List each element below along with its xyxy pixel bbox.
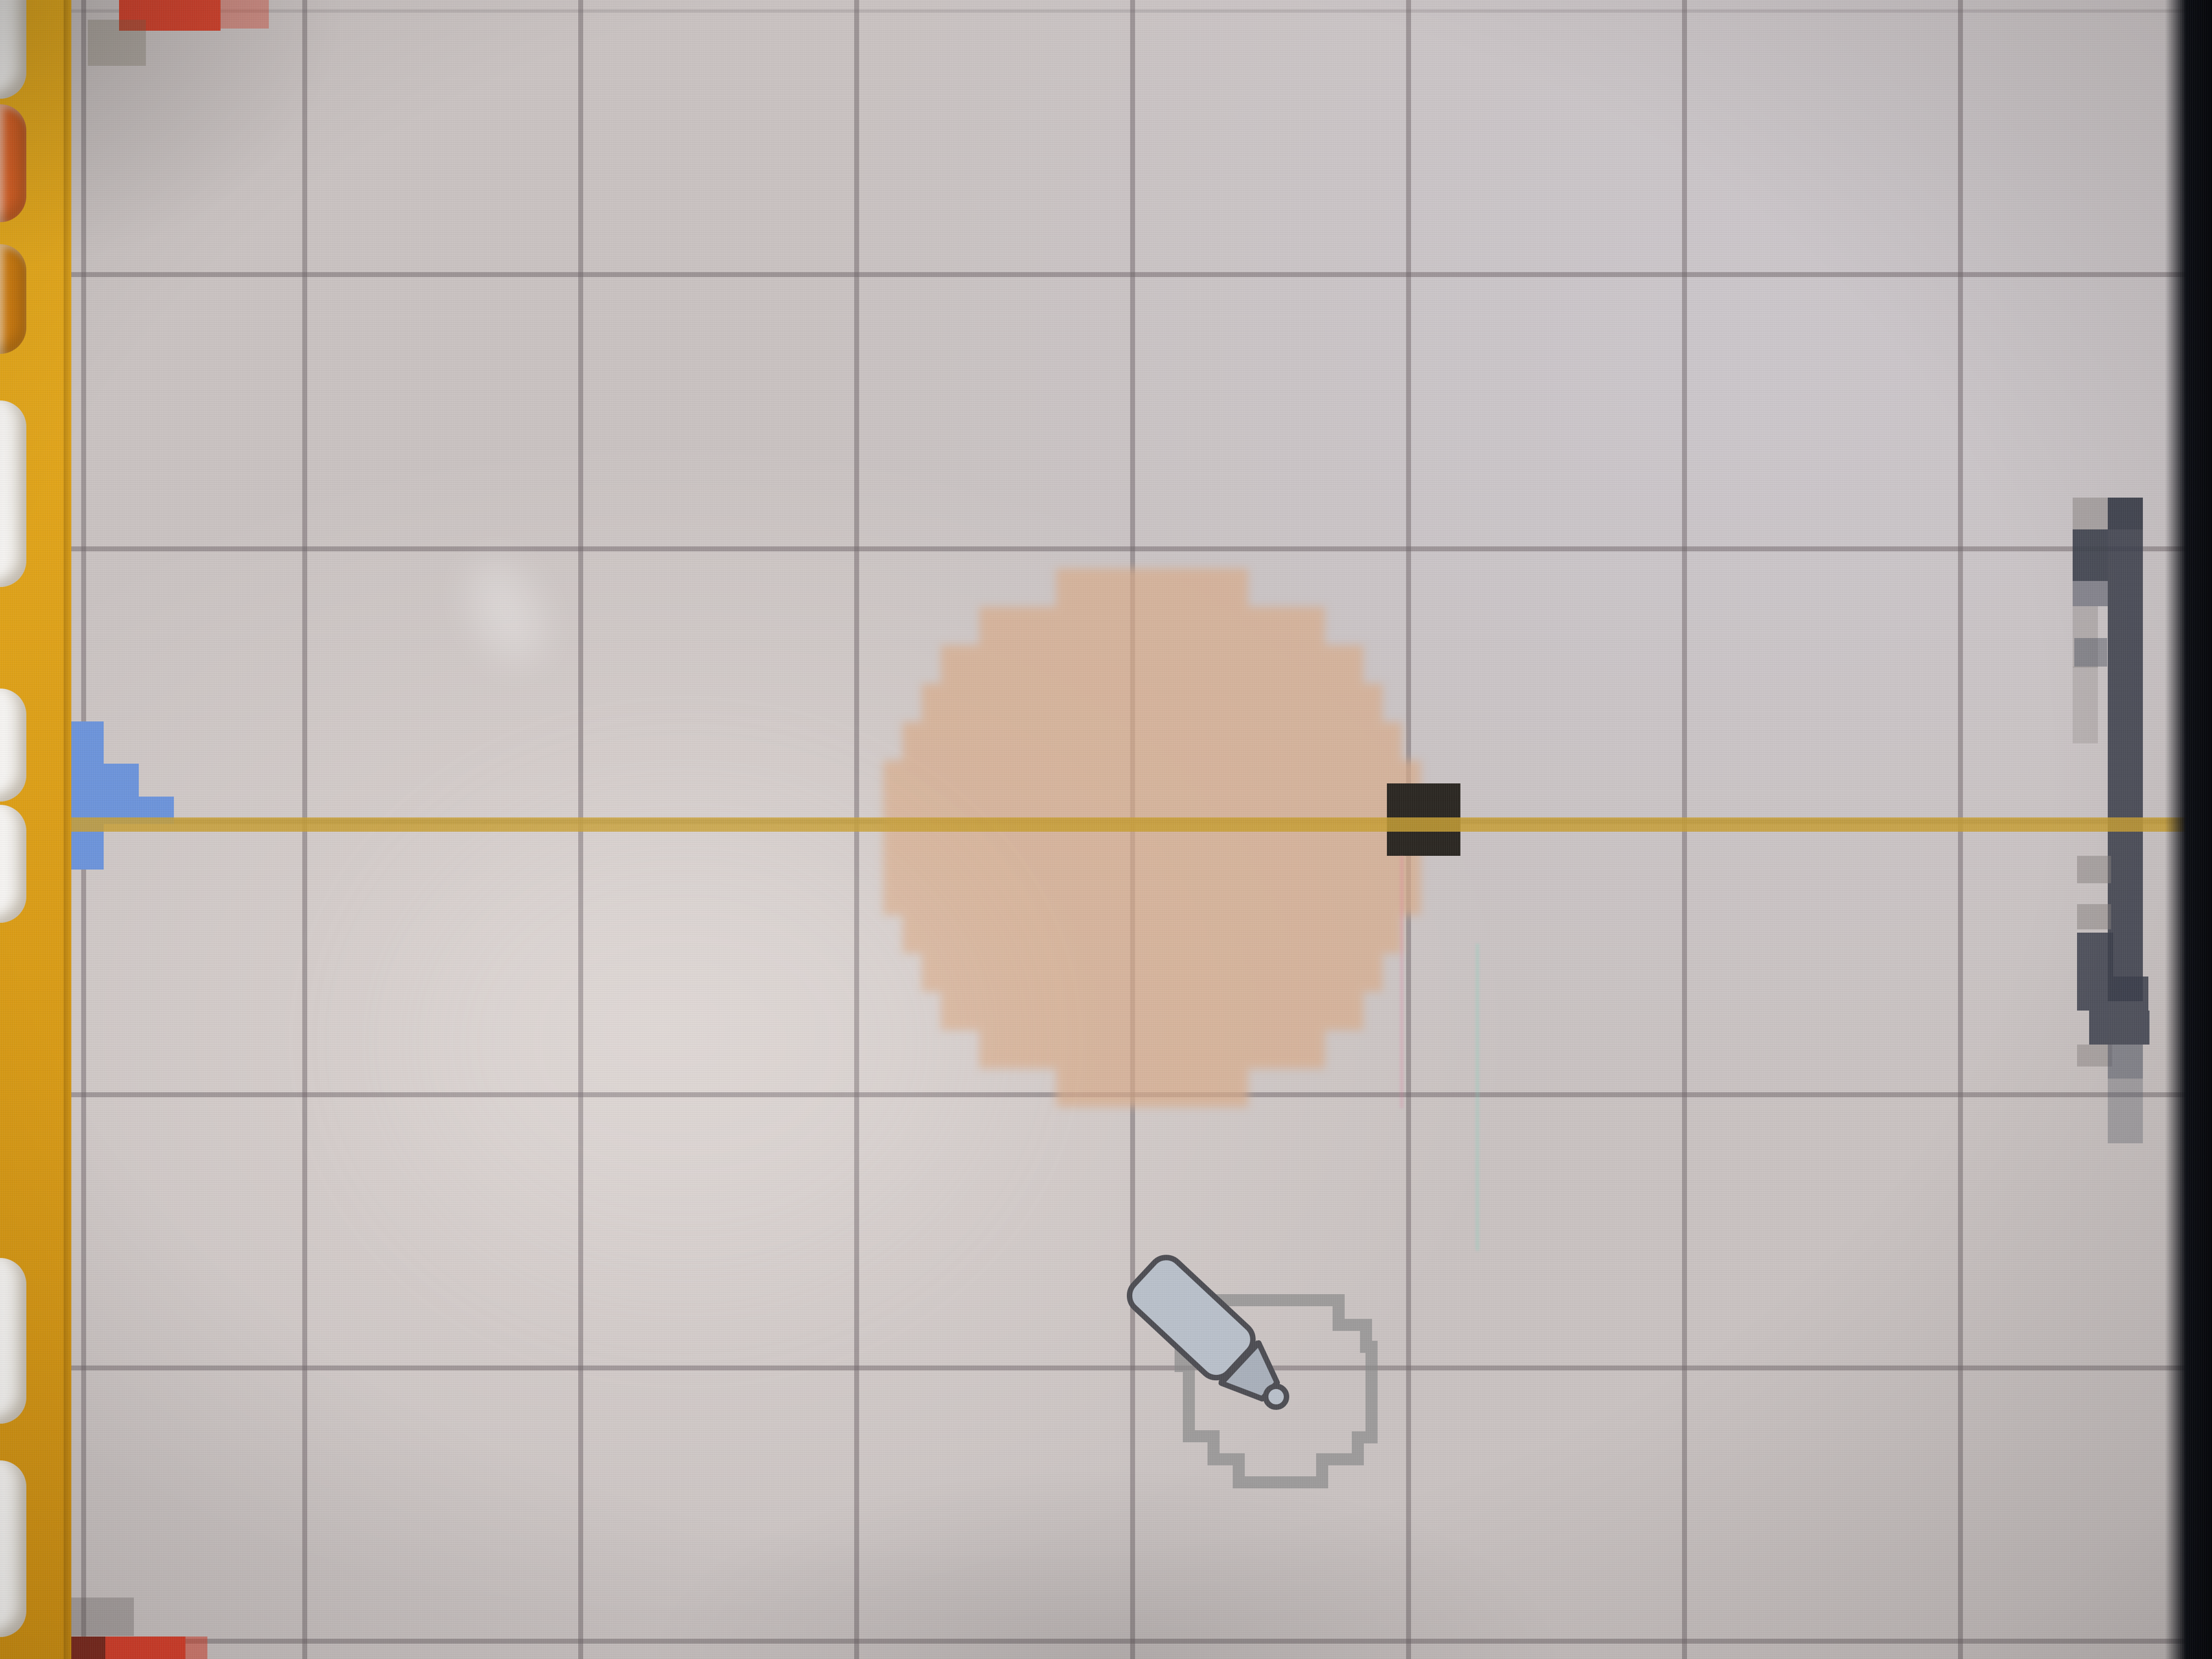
red-block[interactable] <box>185 1637 207 1659</box>
red-block[interactable] <box>105 1637 185 1659</box>
gray-block[interactable] <box>2073 498 2108 529</box>
rail-tab-handle[interactable] <box>0 244 26 354</box>
rail-tab-handle[interactable] <box>0 400 26 587</box>
gray-block[interactable] <box>2073 667 2098 743</box>
blue-block[interactable] <box>104 764 139 824</box>
yellow-power-line <box>70 817 2212 832</box>
rail-tab-handle[interactable] <box>0 805 26 923</box>
gray-block[interactable] <box>2108 498 2143 529</box>
gray-block[interactable] <box>2073 581 2108 606</box>
rail-edge-shadow <box>64 0 72 1659</box>
blue-block[interactable] <box>70 721 104 870</box>
gray-block[interactable] <box>2077 856 2111 883</box>
gray-block[interactable] <box>2077 977 2148 1011</box>
gray-block[interactable] <box>2108 529 2143 1001</box>
game-canvas[interactable] <box>0 0 2212 1659</box>
gray-block[interactable] <box>2077 1045 2112 1066</box>
gray-block[interactable] <box>2073 529 2108 581</box>
gray-block[interactable] <box>2077 933 2113 977</box>
gray-block[interactable] <box>2074 638 2107 667</box>
rail-tab-handle[interactable] <box>0 1460 26 1637</box>
rail-tab-handle[interactable] <box>0 1258 26 1424</box>
gray-block[interactable] <box>2108 1079 2143 1143</box>
rail-tab-handle[interactable] <box>0 689 26 802</box>
rail-tab-handle[interactable] <box>0 0 26 99</box>
screen-bezel-edge <box>2165 0 2212 1659</box>
ghost-block[interactable] <box>88 20 146 66</box>
ghost-block[interactable] <box>221 0 269 29</box>
gray-block[interactable] <box>2108 1045 2143 1079</box>
rail-tab-handle[interactable] <box>0 104 26 222</box>
gray-block[interactable] <box>2077 904 2111 929</box>
gray-block[interactable] <box>2089 1011 2149 1045</box>
